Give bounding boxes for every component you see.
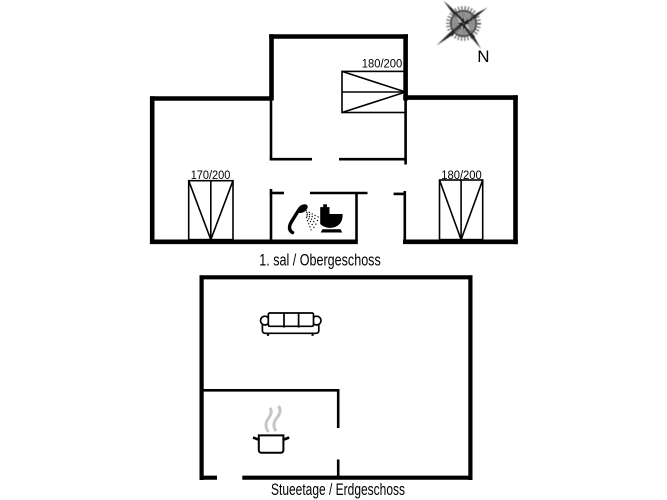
svg-text:170/200: 170/200 xyxy=(191,168,231,182)
svg-text:Stueetage / Erdgeschoss: Stueetage / Erdgeschoss xyxy=(271,481,405,499)
svg-text:180/200: 180/200 xyxy=(441,168,482,182)
svg-text:1. sal / Obergeschoss: 1. sal / Obergeschoss xyxy=(259,252,381,270)
svg-text:180/200: 180/200 xyxy=(362,57,403,71)
svg-text:N: N xyxy=(477,47,489,66)
